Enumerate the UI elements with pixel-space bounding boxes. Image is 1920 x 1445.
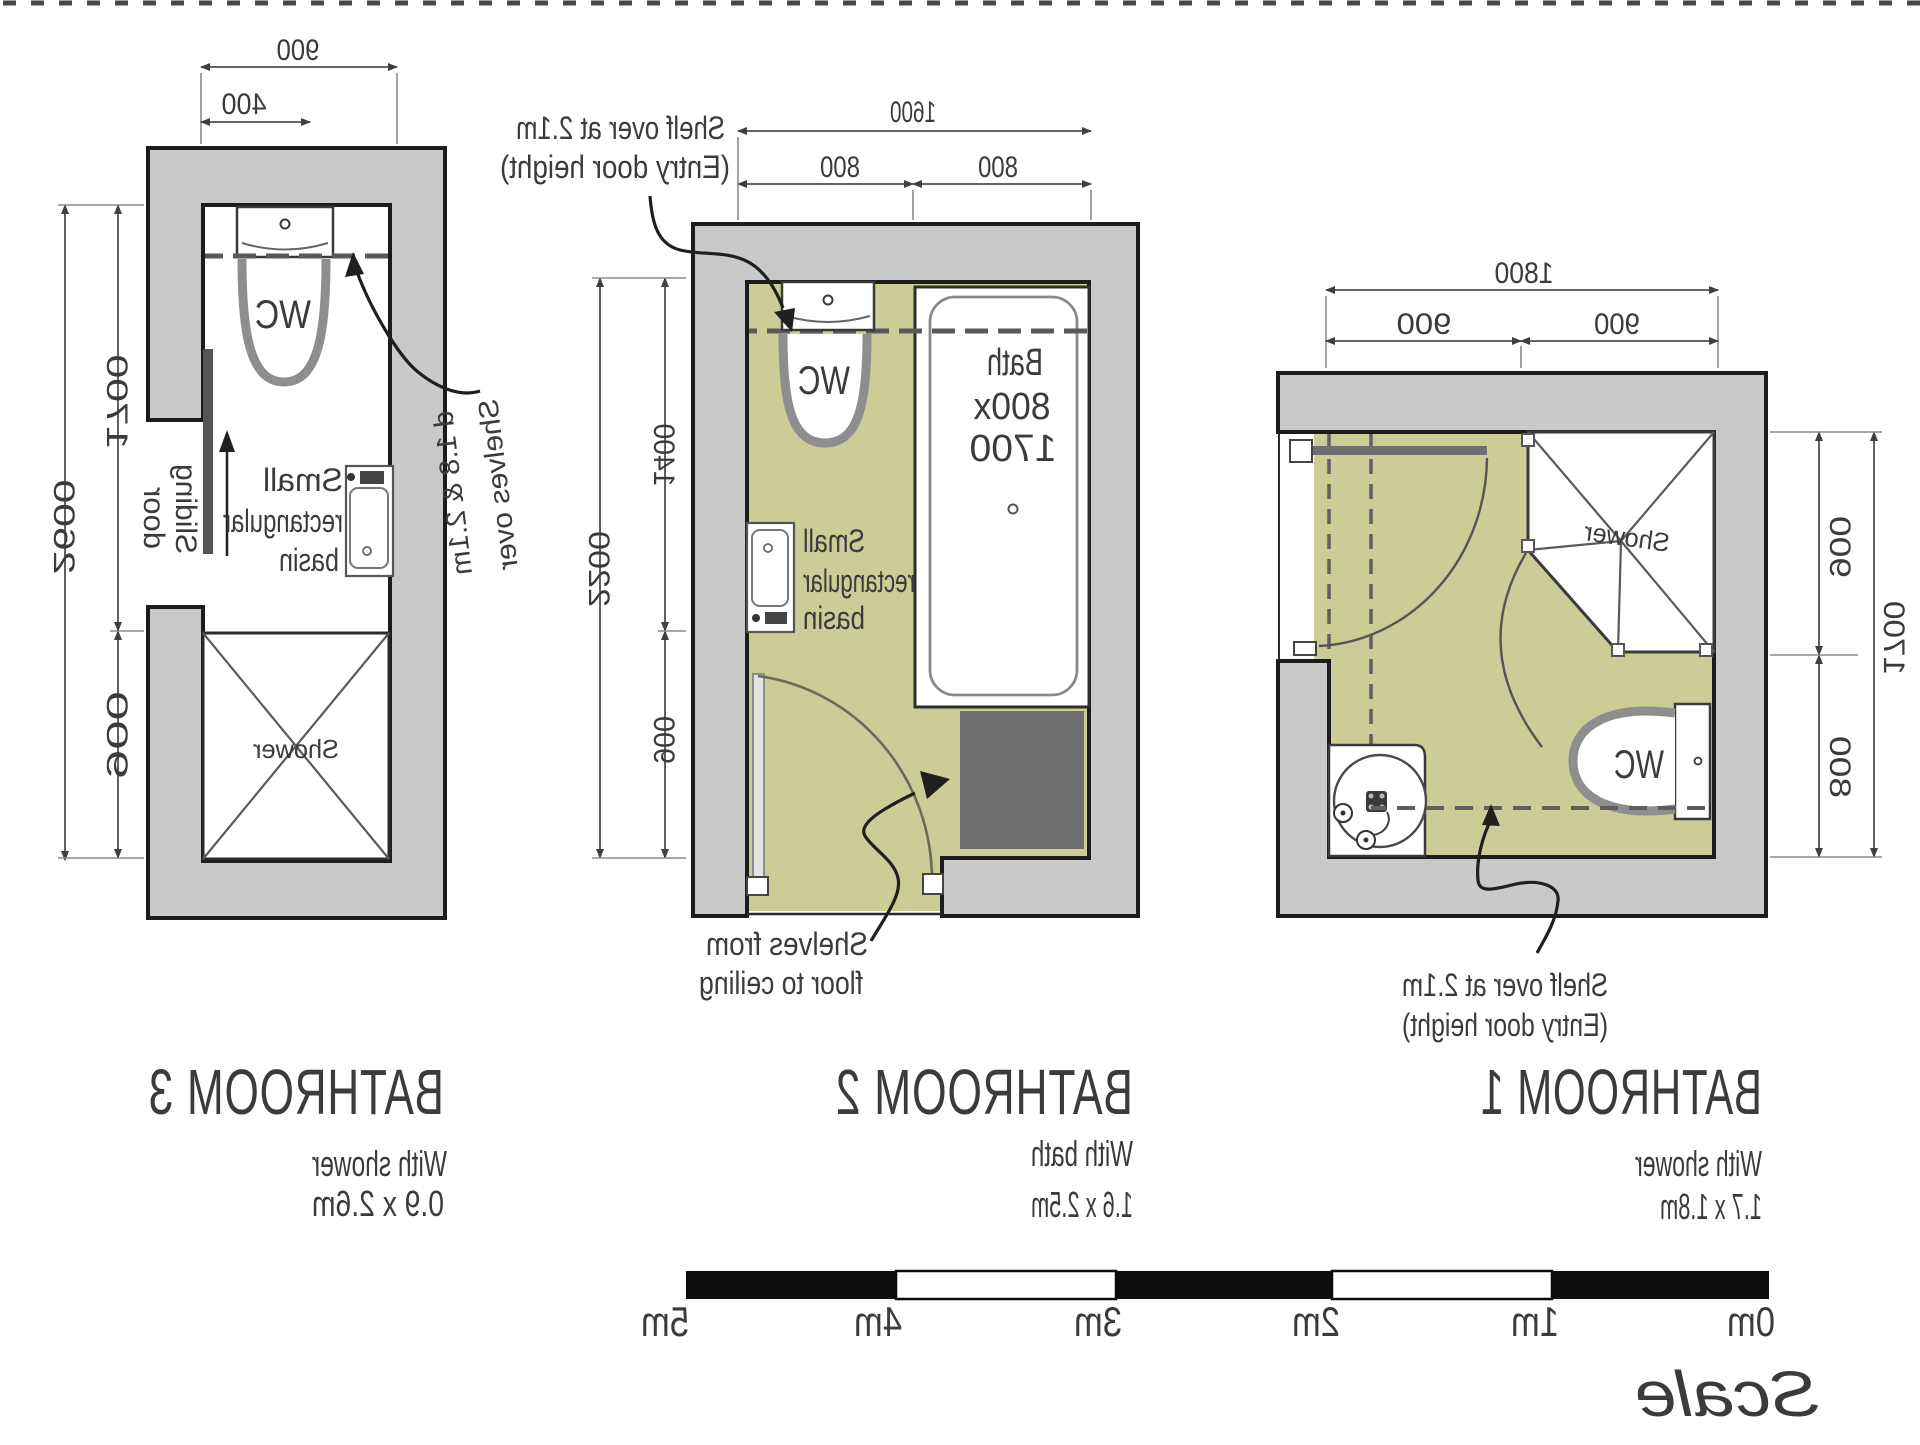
svg-text:Bath: Bath xyxy=(987,342,1043,384)
svg-text:1600: 1600 xyxy=(890,96,936,129)
svg-text:With bath: With bath xyxy=(1031,1133,1133,1174)
svg-text:BATHROOM 1: BATHROOM 1 xyxy=(1480,1056,1762,1128)
svg-text:With shower: With shower xyxy=(1635,1143,1762,1184)
svg-text:Small: Small xyxy=(803,523,865,559)
svg-text:400: 400 xyxy=(222,88,267,121)
svg-text:1m: 1m xyxy=(1511,1298,1559,1345)
svg-text:900: 900 xyxy=(100,691,133,779)
svg-text:basin: basin xyxy=(803,600,865,636)
svg-text:1400: 1400 xyxy=(647,424,680,487)
svg-text:Scale: Scale xyxy=(1635,1358,1820,1430)
svg-text:Shelf over at 2.1m: Shelf over at 2.1m xyxy=(516,110,725,146)
svg-text:BATHROOM 2: BATHROOM 2 xyxy=(835,1056,1133,1128)
svg-text:Shower: Shower xyxy=(253,734,339,764)
svg-text:900: 900 xyxy=(1594,308,1640,341)
svg-text:Shelf over at 2.1m: Shelf over at 2.1m xyxy=(1402,967,1608,1003)
svg-text:1700: 1700 xyxy=(100,355,133,450)
svg-text:0.9 x 2.6m: 0.9 x 2.6m xyxy=(312,1183,444,1224)
svg-text:3m: 3m xyxy=(1074,1298,1122,1345)
svg-text:1.7 x 1.8m: 1.7 x 1.8m xyxy=(1660,1186,1762,1227)
svg-text:With shower: With shower xyxy=(312,1143,447,1184)
svg-text:4m: 4m xyxy=(854,1298,902,1345)
svg-text:rectangular: rectangular xyxy=(803,563,915,599)
svg-text:900: 900 xyxy=(277,34,320,67)
svg-text:2600: 2600 xyxy=(47,480,80,575)
svg-text:800: 800 xyxy=(978,151,1018,184)
svg-text:2m: 2m xyxy=(1292,1298,1340,1345)
svg-text:1800: 1800 xyxy=(1495,257,1554,290)
svg-text:2200: 2200 xyxy=(582,531,615,607)
svg-text:Sliding: Sliding xyxy=(169,464,202,554)
svg-text:900: 900 xyxy=(647,716,680,764)
svg-text:0m: 0m xyxy=(1727,1298,1775,1345)
svg-text:basin: basin xyxy=(279,542,339,578)
svg-text:door: door xyxy=(137,487,170,549)
svg-text:(Entry door height): (Entry door height) xyxy=(1402,1007,1608,1043)
svg-text:800: 800 xyxy=(820,151,860,184)
svg-text:Shelves over: Shelves over xyxy=(472,397,524,571)
svg-text:Small: Small xyxy=(263,462,343,498)
svg-text:1.6 x 2.5m: 1.6 x 2.5m xyxy=(1031,1184,1133,1225)
svg-text:900: 900 xyxy=(1823,516,1856,578)
svg-text:1700: 1700 xyxy=(1877,601,1910,675)
svg-text:Shelves from: Shelves from xyxy=(706,926,868,962)
svg-text:WC: WC xyxy=(1614,743,1664,787)
svg-text:WC: WC xyxy=(255,293,311,337)
svg-text:900: 900 xyxy=(1397,308,1452,341)
svg-text:800x: 800x xyxy=(974,386,1051,428)
svg-text:800: 800 xyxy=(1823,736,1856,798)
svg-text:(Entry door height): (Entry door height) xyxy=(500,149,730,185)
svg-text:rectangular: rectangular xyxy=(223,503,343,539)
svg-text:floor to ceiling: floor to ceiling xyxy=(699,965,863,1001)
svg-text:WC: WC xyxy=(798,359,850,403)
svg-text:1700: 1700 xyxy=(970,428,1057,470)
svg-text:5m: 5m xyxy=(641,1298,689,1345)
svg-text:BATHROOM 3: BATHROOM 3 xyxy=(148,1056,444,1128)
